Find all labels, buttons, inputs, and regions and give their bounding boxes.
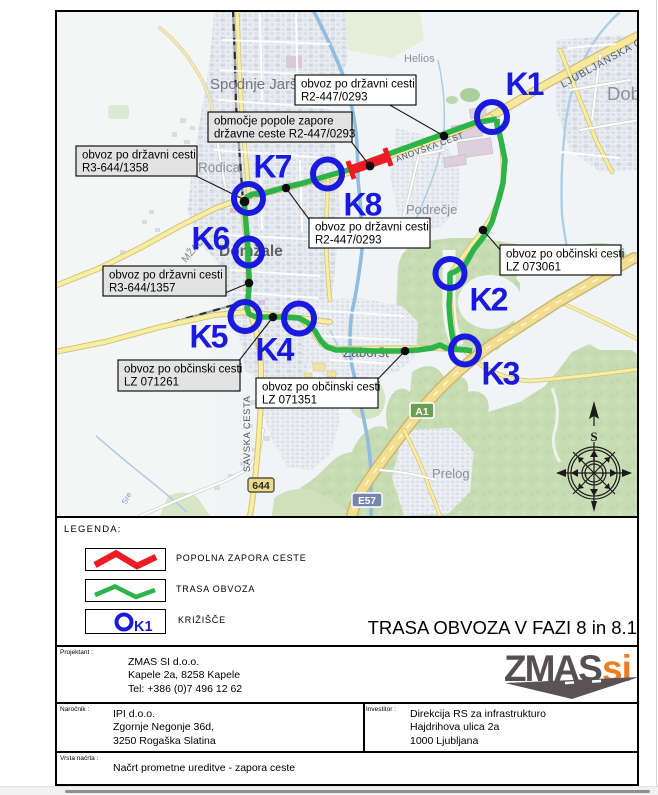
svg-text:LZ 071351: LZ 071351	[262, 395, 317, 407]
svg-text:j: j	[592, 488, 594, 494]
svg-text:Helios: Helios	[404, 53, 435, 65]
svg-text:S: S	[590, 429, 597, 444]
svg-text:obvoz po občinski cesti: obvoz po občinski cesti	[506, 249, 624, 261]
svg-text:Rodica: Rodica	[198, 160, 241, 175]
svg-text:R2-447/0293: R2-447/0293	[301, 92, 368, 104]
svg-text:obvoz po državni cesti: obvoz po državni cesti	[82, 150, 196, 162]
svg-text:E57: E57	[358, 496, 376, 507]
svg-text:R2-447/0293: R2-447/0293	[315, 235, 382, 247]
svg-text:K4: K4	[256, 332, 295, 368]
svg-text:obvoz po državni cesti: obvoz po državni cesti	[109, 270, 223, 282]
svg-text:Domžale: Domžale	[219, 243, 283, 260]
svg-text:SAVSKA CESTA: SAVSKA CESTA	[242, 395, 253, 472]
svg-text:LZ 071261: LZ 071261	[124, 377, 179, 389]
svg-text:R3-644/1358: R3-644/1358	[82, 163, 149, 175]
svg-text:K8: K8	[344, 187, 382, 223]
svg-text:K1: K1	[134, 619, 153, 633]
svg-text:K2: K2	[470, 282, 508, 318]
svg-text:državne ceste R2-447/0293: državne ceste R2-447/0293	[214, 129, 355, 141]
svg-text:obvoz po državni cesti: obvoz po državni cesti	[315, 222, 429, 234]
svg-text:K6: K6	[192, 221, 230, 257]
svg-text:K5: K5	[190, 319, 228, 355]
svg-text:A1: A1	[415, 406, 429, 418]
svg-text:644: 644	[252, 480, 270, 492]
svg-text:K7: K7	[254, 149, 292, 185]
svg-text:obvoz po državni cesti: obvoz po državni cesti	[301, 79, 415, 91]
svg-text:Podrečje: Podrečje	[406, 202, 457, 217]
svg-text:K1: K1	[506, 66, 544, 102]
svg-text:R3-644/1357: R3-644/1357	[109, 283, 176, 295]
svg-text:K3: K3	[482, 356, 520, 392]
svg-text:obvoz po občinski cesti: obvoz po občinski cesti	[262, 382, 380, 394]
svg-text:Prelog: Prelog	[432, 466, 470, 481]
svg-text:Dob: Dob	[607, 83, 637, 104]
svg-text:območje popole zapore: območje popole zapore	[214, 116, 334, 128]
svg-text:obvoz po občinski cesti: obvoz po občinski cesti	[124, 364, 242, 376]
svg-text:Spodnje Jarše: Spodnje Jarše	[210, 76, 306, 93]
svg-text:LZ 073061: LZ 073061	[506, 262, 561, 274]
